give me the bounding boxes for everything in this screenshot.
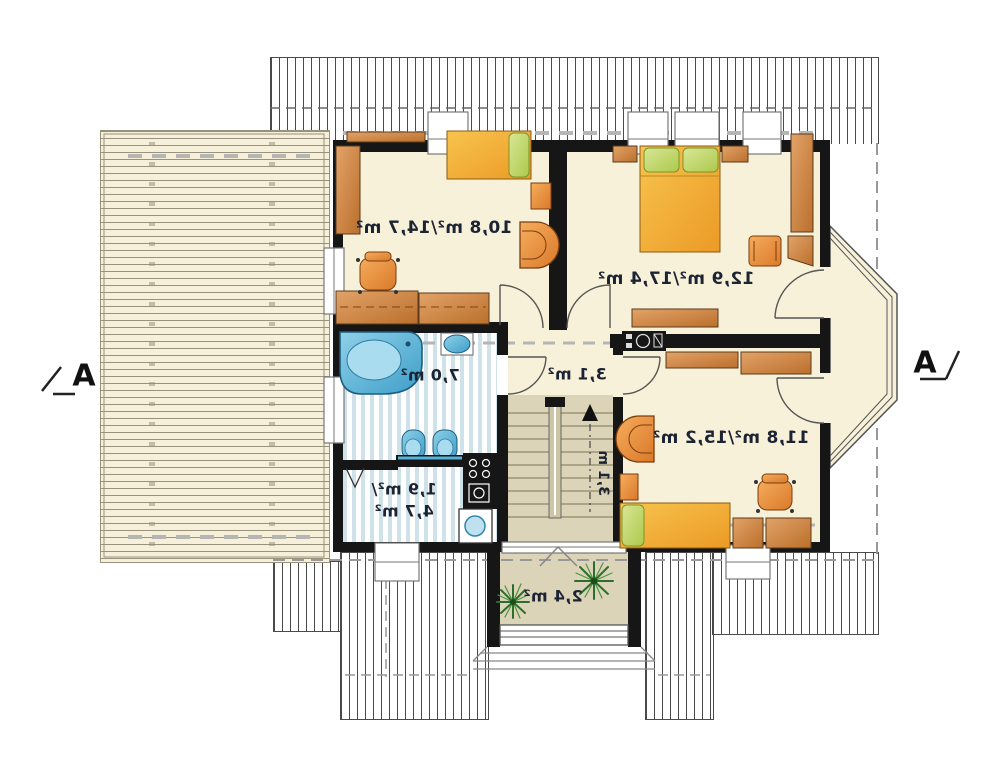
desk-chair xyxy=(754,474,796,513)
armchair xyxy=(520,222,559,268)
nightstand xyxy=(722,146,748,162)
armchair xyxy=(616,416,654,462)
label-stairs-width: 3,1 m xyxy=(595,450,611,496)
desk xyxy=(766,518,811,548)
pillow xyxy=(509,133,529,177)
wardrobe xyxy=(666,352,738,368)
wardrobe xyxy=(741,352,811,374)
utility-cabinet xyxy=(463,453,497,509)
pillow xyxy=(683,148,718,172)
pillow xyxy=(622,505,644,546)
bay-balcony xyxy=(830,226,897,468)
nightstand xyxy=(620,474,638,500)
slope-height-mark xyxy=(346,468,364,487)
vanity-unit xyxy=(622,331,666,351)
washbasin xyxy=(444,335,470,353)
label-laundry-2: 4,7 m² xyxy=(374,502,433,521)
balcony-balustrade xyxy=(473,625,655,669)
stair-newel xyxy=(545,397,565,407)
nightstand xyxy=(613,146,637,162)
dresser xyxy=(632,309,718,327)
room3-furniture xyxy=(616,352,811,548)
nightstand xyxy=(531,183,551,209)
label-bathroom: 7,0 m² xyxy=(400,366,459,385)
pillow xyxy=(644,148,679,172)
label-laundry-1: 1,9 m²/ xyxy=(371,480,437,499)
section-letter-left: A xyxy=(72,359,95,394)
label-balcony: 2,4 m² xyxy=(523,587,582,606)
label-room-bottom-right: 11,8 m²/15,2 m² xyxy=(653,428,810,448)
section-letter-right: A xyxy=(913,346,936,381)
label-room-top-left: 10,8 m²/14,7 m² xyxy=(356,218,513,238)
terrace-detail xyxy=(104,134,324,557)
desk-chair xyxy=(356,252,400,294)
label-room-top-right: 12,9 m²/17,4 m² xyxy=(598,269,755,289)
plan-drawing xyxy=(0,0,1000,776)
desk xyxy=(733,518,763,548)
label-hall: 3,1 m² xyxy=(547,365,606,384)
wardrobe xyxy=(791,134,813,232)
floor-plan-canvas: 10,8 m²/14,7 m² 12,9 m²/17,4 m² 11,8 m²/… xyxy=(0,0,1000,776)
